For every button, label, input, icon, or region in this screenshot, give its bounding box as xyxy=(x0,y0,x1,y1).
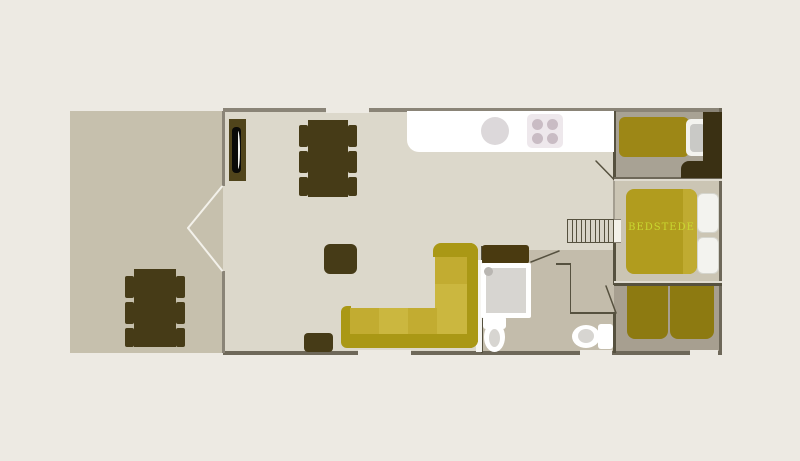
chair xyxy=(176,302,185,324)
burner-icon xyxy=(547,119,558,130)
burner-icon xyxy=(532,119,543,130)
chair xyxy=(299,177,308,196)
sofa-back-bottom xyxy=(341,334,478,348)
sofa-back-right xyxy=(467,243,478,348)
sofa-cushion xyxy=(408,308,437,334)
sofa-cushion xyxy=(435,257,467,284)
toilet-right xyxy=(572,324,613,349)
window-bottom-1 xyxy=(358,350,411,356)
wc-wall-bottom xyxy=(570,312,615,314)
coffee-table xyxy=(324,244,357,274)
separator-bedrooms-top-fill xyxy=(614,179,722,182)
bed-single-bottom-right xyxy=(670,286,714,339)
stairs xyxy=(567,219,614,243)
wc-wall-top xyxy=(556,263,570,265)
chair xyxy=(348,125,357,147)
sofa-cushion xyxy=(437,308,467,334)
chair xyxy=(125,302,134,324)
wc-wall-left xyxy=(570,263,572,313)
floor-plan: BEDSTEDE xyxy=(0,0,800,461)
bedstede-label: BEDSTEDE xyxy=(624,222,699,233)
chair xyxy=(125,328,134,347)
dining-table-terrace xyxy=(134,269,176,347)
wardrobe-leg xyxy=(681,161,722,178)
burner-icon xyxy=(532,133,543,144)
wall-terrace-lower xyxy=(222,271,225,353)
chair xyxy=(176,328,185,347)
burner-icon xyxy=(547,133,558,144)
pillow xyxy=(697,193,719,233)
window-top xyxy=(326,107,369,113)
chair xyxy=(176,276,185,298)
pillow xyxy=(697,237,719,274)
shower-head-icon xyxy=(484,267,493,276)
chair xyxy=(348,177,357,196)
toilet-bowl-inner xyxy=(489,329,500,347)
tv-screen xyxy=(232,127,241,173)
tv-sideboard xyxy=(229,119,246,181)
kitchen-counter xyxy=(407,111,614,152)
stair-tread xyxy=(609,220,613,242)
kitchen-sink xyxy=(481,117,509,145)
toilet-tank xyxy=(598,324,613,349)
stove-cooktop xyxy=(527,114,563,148)
dining-table-indoor xyxy=(308,120,348,197)
toilet-left xyxy=(483,316,506,353)
window-bottom-3 xyxy=(690,350,718,356)
sofa-cushion xyxy=(435,284,467,310)
chair xyxy=(299,151,308,173)
wall-bedstede-left-lower xyxy=(613,243,616,285)
bathroom-cabinet xyxy=(482,245,529,264)
bed-single-bottom-left xyxy=(627,286,668,339)
wall-bottom xyxy=(223,351,722,355)
toilet-bowl-inner xyxy=(578,329,594,343)
stairs-wall-opening xyxy=(613,219,621,243)
sofa-cushion xyxy=(379,308,408,334)
chair xyxy=(299,125,308,147)
chair xyxy=(125,276,134,298)
shower-tray xyxy=(486,268,526,313)
tv-screen-glint xyxy=(236,131,240,169)
chair xyxy=(348,151,357,173)
wall-bedstede-left xyxy=(613,180,615,220)
sofa-cushion xyxy=(350,308,379,334)
side-table xyxy=(304,333,333,352)
shower xyxy=(481,263,531,318)
wall-bedroom-bottom-left xyxy=(613,313,616,353)
window-bottom-2 xyxy=(580,350,612,356)
bed-single-top xyxy=(619,117,689,157)
wall-terrace-upper xyxy=(222,111,225,186)
